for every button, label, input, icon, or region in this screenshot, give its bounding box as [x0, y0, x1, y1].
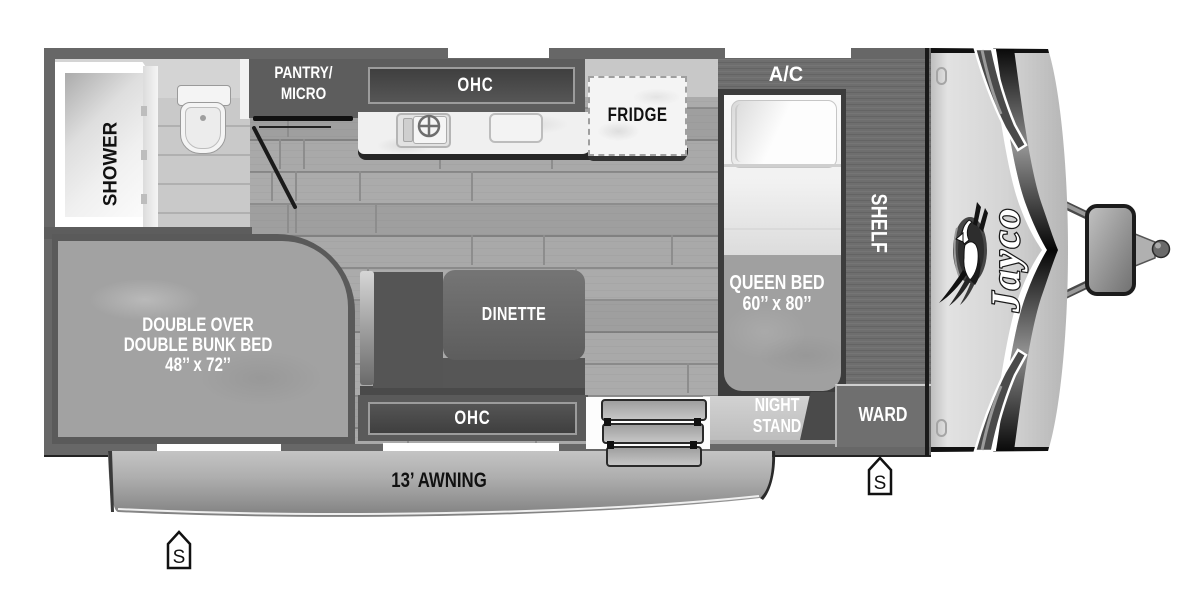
svg-text:S: S [173, 547, 186, 568]
svg-text:Jayco: Jayco [983, 206, 1028, 313]
svg-text:S: S [874, 473, 887, 494]
